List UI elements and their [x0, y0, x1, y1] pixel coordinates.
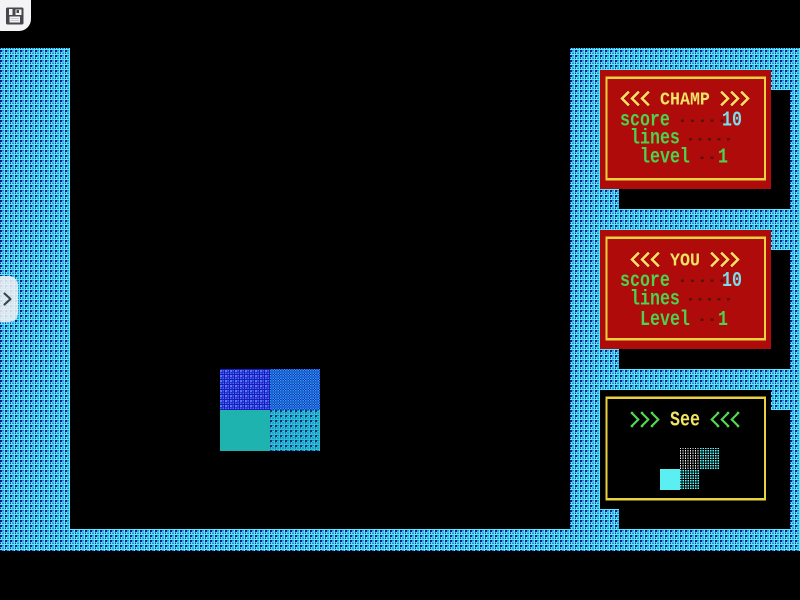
svg-text:level: level — [640, 145, 690, 169]
svg-text:See: See — [670, 408, 700, 432]
svg-text:YOU: YOU — [670, 251, 700, 272]
svg-text:10: 10 — [722, 268, 742, 292]
svg-text:1: 1 — [718, 307, 728, 331]
svg-text:1: 1 — [718, 145, 728, 169]
svg-text:10: 10 — [722, 108, 742, 132]
svg-text:Level: Level — [640, 307, 690, 331]
